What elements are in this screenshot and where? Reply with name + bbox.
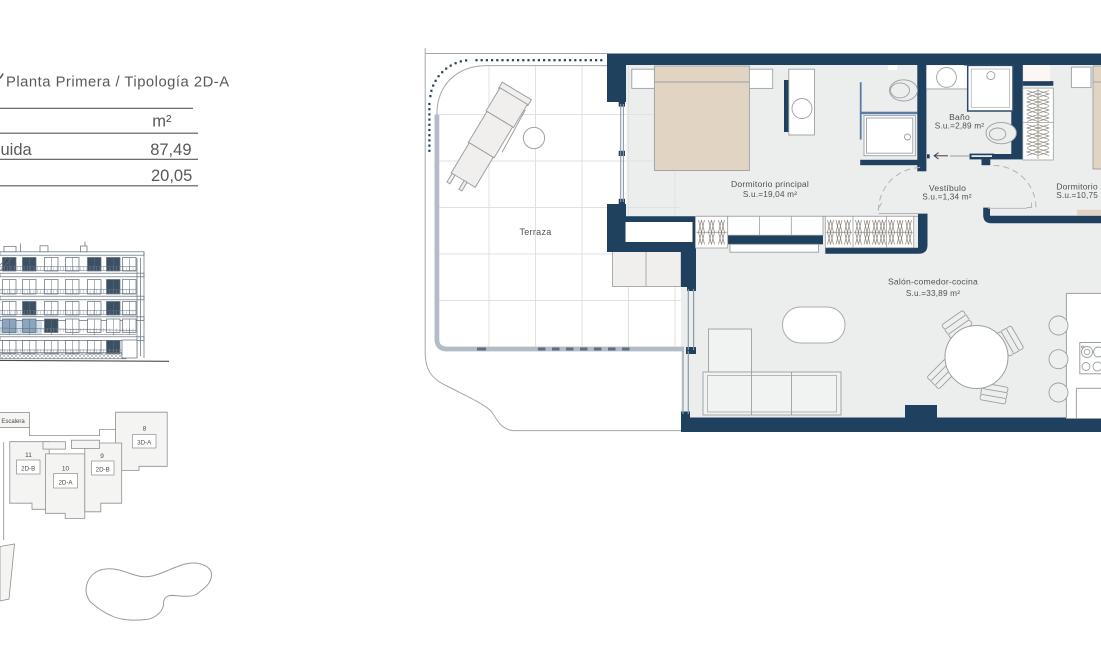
- svg-text:Vestíbulo: Vestíbulo: [929, 183, 966, 193]
- svg-text:Planta Primera / Tipología 2D-: Planta Primera / Tipología 2D-A: [6, 75, 230, 91]
- svg-text:uida: uida: [1, 141, 33, 159]
- svg-text:20,05: 20,05: [151, 167, 192, 185]
- svg-text:Baño: Baño: [949, 112, 970, 122]
- svg-text:S.u.=19,04 m²: S.u.=19,04 m²: [743, 190, 797, 199]
- svg-text:3D-A: 3D-A: [137, 440, 152, 447]
- svg-text:2D-B: 2D-B: [21, 466, 35, 473]
- svg-text:11: 11: [25, 452, 32, 459]
- svg-text:S.u.=2,89 m²: S.u.=2,89 m²: [935, 122, 985, 131]
- svg-text:S.u.=10,75 m²: S.u.=10,75 m²: [1056, 191, 1101, 200]
- svg-text:Salón-comedor-cocina: Salón-comedor-cocina: [888, 277, 978, 287]
- svg-text:8: 8: [143, 426, 147, 433]
- svg-text:m²: m²: [152, 113, 172, 131]
- svg-text:S.u.=1,34 m²: S.u.=1,34 m²: [922, 193, 972, 202]
- svg-text:Dormitorio 2: Dormitorio 2: [1056, 182, 1101, 192]
- svg-text:10: 10: [62, 466, 70, 473]
- svg-text:2D-A: 2D-A: [58, 480, 73, 487]
- svg-text:S.u.=33,89 m²: S.u.=33,89 m²: [906, 289, 960, 298]
- svg-text:Dormitorio principal: Dormitorio principal: [731, 179, 809, 189]
- svg-text:9: 9: [100, 453, 104, 460]
- svg-text:Terraza: Terraza: [519, 227, 551, 237]
- svg-text:Escalera: Escalera: [1, 419, 25, 425]
- svg-text:2D-B: 2D-B: [96, 467, 110, 474]
- svg-text:87,49: 87,49: [150, 141, 191, 159]
